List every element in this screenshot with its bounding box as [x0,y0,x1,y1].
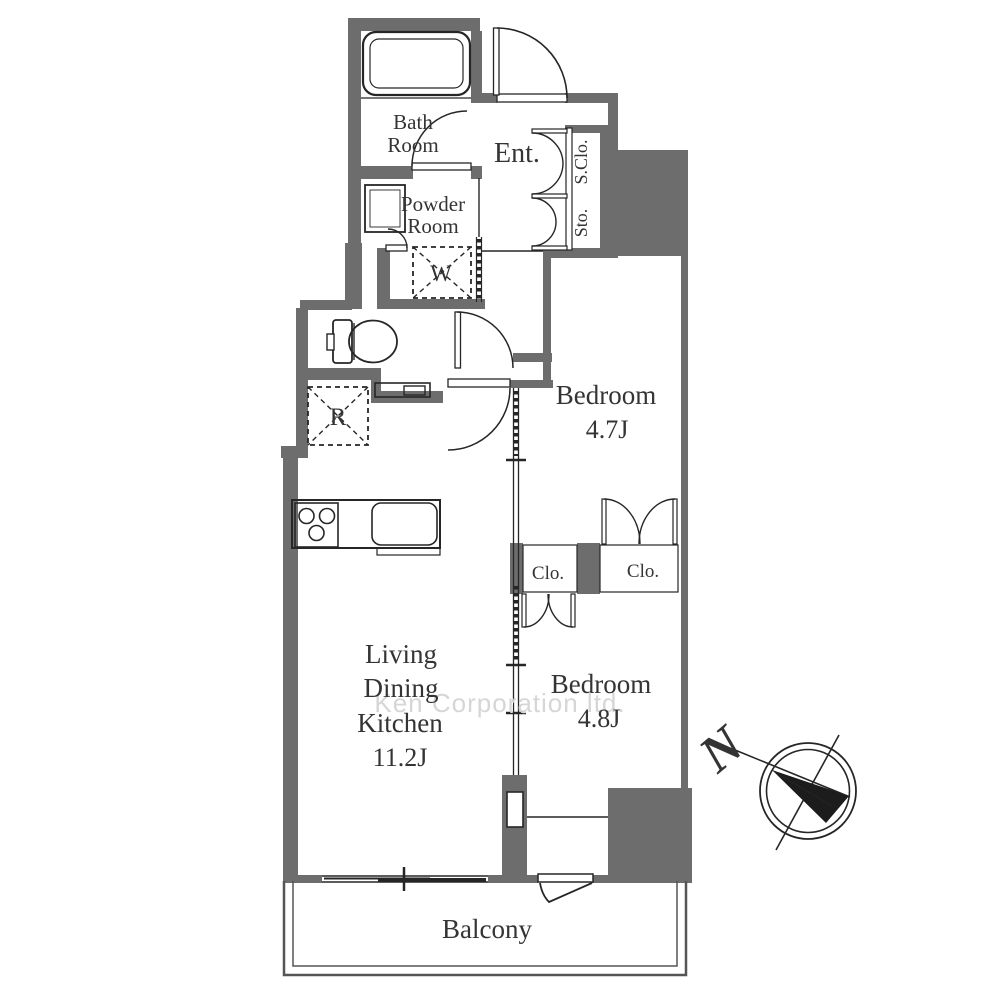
closet-left-label: Clo. [532,563,564,584]
ldk-label-1: Living [365,639,437,669]
toilet-door [455,312,513,368]
ldk-label-3: Kitchen [357,708,443,738]
bath-room-label-1: Bath [393,110,433,134]
shoe-closet-label: S.Clo. [571,139,591,184]
powder-corridor-slider [477,178,482,302]
bedroom2-label: Bedroom [551,669,652,699]
compass-needle [772,770,849,823]
closet-right-label: Clo. [627,561,659,582]
storage-label: Sto. [571,209,591,238]
bedroom1-size: 4.7J [586,415,629,444]
north-compass: N [688,714,856,850]
compass-north-label: N [688,714,756,784]
closet-right-doors [602,499,677,544]
bedroom2-size: 4.8J [578,704,621,733]
ldk-label-2: Dining [363,673,438,703]
closet-left-doors [522,594,575,627]
bedroom2-balcony-door [538,874,593,902]
ldk-size: 11.2J [373,743,428,772]
floor-plan: N Ken Corporation ltd. Bath Room Powder … [0,0,1000,1000]
bedroom1-label: Bedroom [556,380,657,410]
balcony-label: Balcony [442,914,532,944]
pipe-shaft-box [507,792,523,827]
bath-room-label-2: Room [387,133,438,157]
floor-plan-canvas: N Ken Corporation ltd. Bath Room Powder … [0,0,1000,1000]
powder-vanity [365,185,405,232]
ldk-hall-door [448,379,510,450]
toilet [327,320,397,363]
powder-room-label-2: Room [407,214,458,238]
entrance-label: Ent. [494,138,540,169]
entrance-door [494,28,568,102]
refrigerator-mark-label: R [330,404,347,431]
powder-room-label-1: Powder [401,192,465,216]
ldk-balcony-window [322,867,488,891]
walls [281,18,692,883]
washer-mark-label: W [430,261,452,286]
kitchen-counter [292,500,440,555]
bathtub [361,32,471,98]
